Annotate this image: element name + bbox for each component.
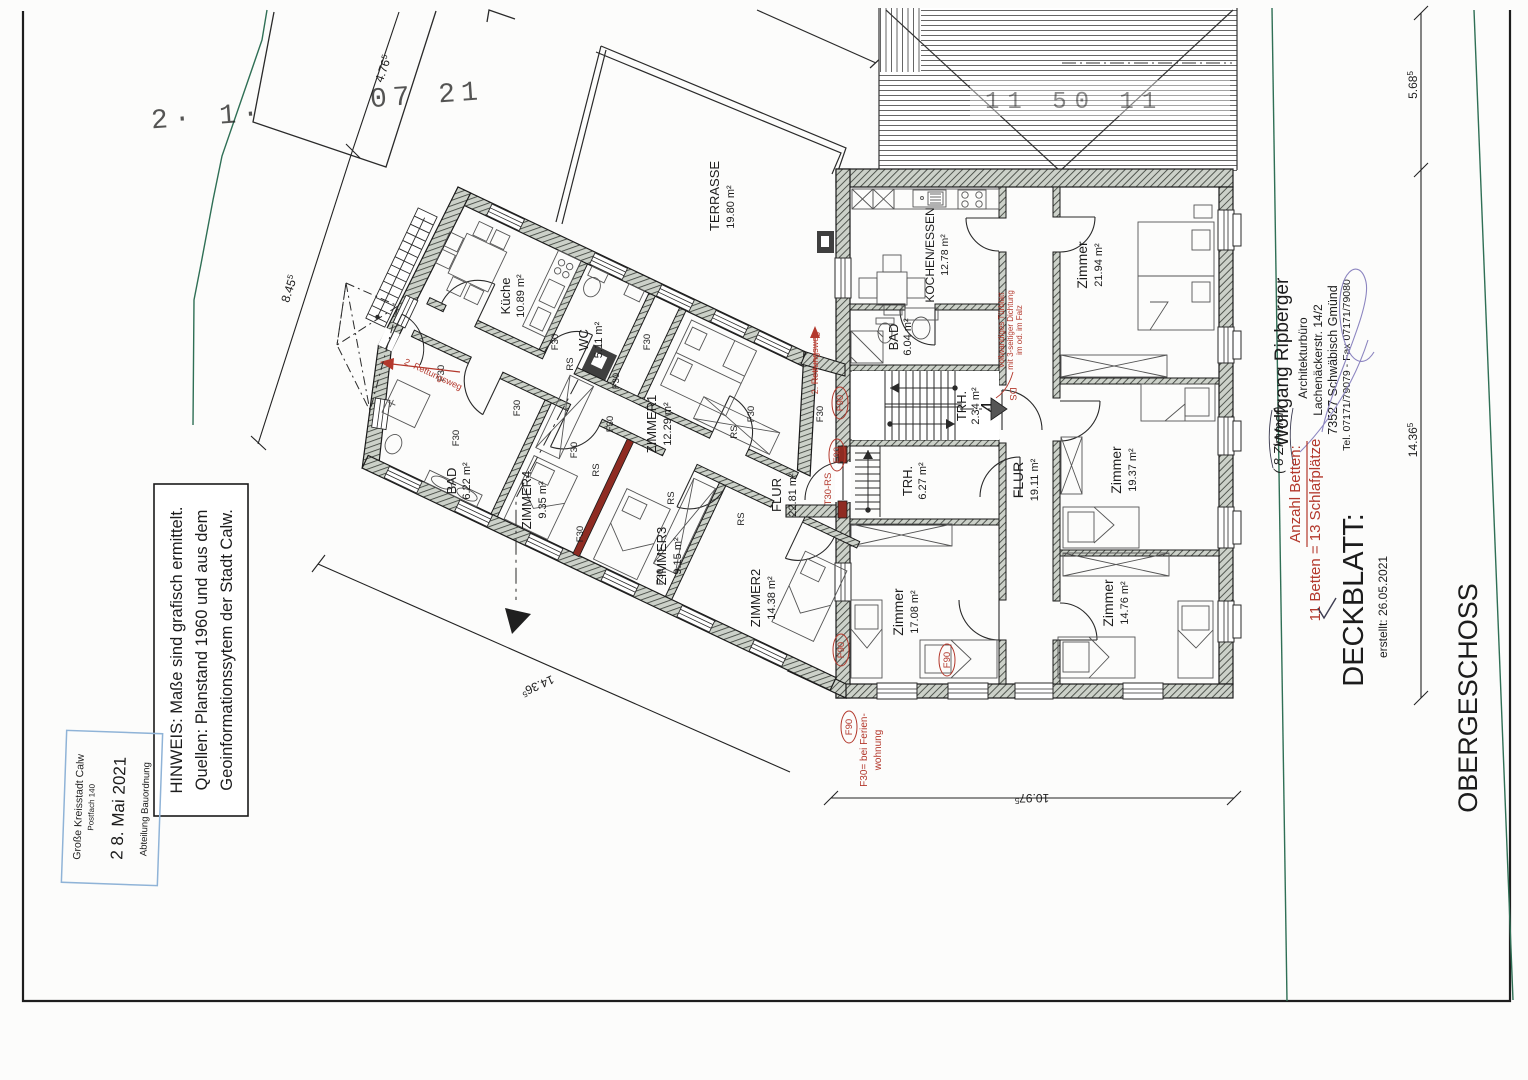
svg-text:10.89 m²: 10.89 m² bbox=[515, 274, 527, 318]
svg-text:17.08 m²: 17.08 m² bbox=[909, 590, 921, 634]
svg-text:2. Rettungsweg: 2. Rettungsweg bbox=[810, 332, 820, 395]
svg-text:wohnung: wohnung bbox=[873, 730, 884, 772]
svg-text:F30: F30 bbox=[569, 442, 580, 458]
svg-text:12.29 m²: 12.29 m² bbox=[662, 402, 674, 446]
svg-text:RS: RS bbox=[591, 463, 602, 476]
svg-text:F30: F30 bbox=[611, 373, 622, 389]
svg-text:F30= bei Ferien-: F30= bei Ferien- bbox=[859, 713, 870, 787]
svg-text:F90: F90 bbox=[942, 652, 953, 668]
svg-text:vollwandiges Türblatt: vollwandiges Türblatt bbox=[997, 292, 1006, 368]
svg-text:HINWEIS: Maße sind grafisch er: HINWEIS: Maße sind grafisch ermittelt. bbox=[168, 507, 186, 794]
svg-text:Quellen: Planstand 1960 und au: Quellen: Planstand 1960 und aus dem bbox=[193, 510, 211, 791]
svg-text:F90: F90 bbox=[832, 447, 843, 463]
svg-text:TERRASSE: TERRASSE bbox=[707, 161, 722, 231]
svg-text:F90: F90 bbox=[836, 642, 847, 658]
svg-text:19.11 m²: 19.11 m² bbox=[1029, 458, 1041, 501]
svg-text:F30: F30 bbox=[746, 406, 757, 422]
svg-text:erstellt: 26.05.2021: erstellt: 26.05.2021 bbox=[1376, 556, 1390, 658]
svg-text:6.04 m²: 6.04 m² bbox=[902, 318, 914, 356]
svg-text:ZIMMER4: ZIMMER4 bbox=[519, 471, 534, 530]
svg-text:F30: F30 bbox=[605, 416, 616, 432]
svg-text:ZIMMER1: ZIMMER1 bbox=[644, 395, 659, 454]
svg-text:19.80 m²: 19.80 m² bbox=[725, 185, 737, 229]
svg-text:5.11 m²: 5.11 m² bbox=[593, 321, 605, 358]
svg-text:( 8 Zimmer): ( 8 Zimmer) bbox=[1271, 406, 1286, 473]
svg-text:22.81 m²: 22.81 m² bbox=[787, 473, 799, 517]
svg-text:BAD: BAD bbox=[444, 468, 459, 495]
svg-text:OBERGESCHOSS: OBERGESCHOSS bbox=[1453, 583, 1483, 813]
svg-text:10.975: 10.975 bbox=[1014, 791, 1049, 805]
svg-text:Zimmer: Zimmer bbox=[1074, 241, 1090, 289]
svg-text:11 Betten = 13 Schlafplätze: 11 Betten = 13 Schlafplätze bbox=[1307, 439, 1324, 622]
svg-text:Architekturbüro: Architekturbüro bbox=[1296, 317, 1310, 399]
svg-text:T30-RS: T30-RS bbox=[823, 473, 834, 506]
svg-text:F30: F30 bbox=[451, 430, 462, 446]
svg-text:WC: WC bbox=[576, 329, 591, 351]
svg-text:FLUR: FLUR bbox=[769, 478, 784, 512]
svg-text:14.38 m²: 14.38 m² bbox=[766, 576, 778, 620]
svg-text:DS: DS bbox=[1007, 387, 1018, 400]
svg-text:F30: F30 bbox=[575, 526, 586, 542]
svg-text:6.27 m²: 6.27 m² bbox=[917, 462, 929, 500]
svg-text:19.37 m²: 19.37 m² bbox=[1127, 448, 1139, 492]
svg-text:DECKBLATT:: DECKBLATT: bbox=[1338, 513, 1370, 687]
svg-text:9.35 m²: 9.35 m² bbox=[537, 481, 549, 519]
svg-text:F30: F30 bbox=[655, 569, 666, 585]
svg-text:RS: RS bbox=[565, 357, 576, 370]
svg-text:Zimmer: Zimmer bbox=[1100, 579, 1116, 627]
svg-text:11 50 11: 11 50 11 bbox=[985, 89, 1164, 116]
svg-text:TRH.: TRH. bbox=[900, 466, 915, 496]
svg-text:RS: RS bbox=[729, 425, 740, 438]
svg-text:F90: F90 bbox=[835, 395, 846, 411]
svg-text:im od. im Falz: im od. im Falz bbox=[1015, 305, 1024, 355]
svg-text:14.365: 14.365 bbox=[1406, 422, 1420, 457]
svg-text:Postfach 140: Postfach 140 bbox=[86, 783, 97, 831]
svg-text:RS: RS bbox=[736, 512, 747, 525]
svg-text:F30: F30 bbox=[815, 406, 826, 422]
svg-text:F30: F30 bbox=[512, 400, 523, 416]
svg-text:FLUR: FLUR bbox=[1010, 462, 1026, 499]
svg-text:2 8. Mai 2021: 2 8. Mai 2021 bbox=[107, 756, 130, 860]
svg-text:RS: RS bbox=[666, 491, 677, 504]
svg-text:21.94 m²: 21.94 m² bbox=[1093, 243, 1105, 287]
svg-text:mit 3-seitiger Dichtung: mit 3-seitiger Dichtung bbox=[1006, 290, 1015, 370]
svg-text:Tel. 07171/79079 - Fax 07171/7: Tel. 07171/79079 - Fax 07171/79080 bbox=[1341, 279, 1353, 451]
svg-text:Zimmer: Zimmer bbox=[890, 588, 906, 636]
svg-text:F30: F30 bbox=[642, 334, 653, 350]
svg-text:F90: F90 bbox=[844, 719, 855, 735]
svg-text:Lachenäckerstr. 14/2: Lachenäckerstr. 14/2 bbox=[1311, 304, 1325, 416]
svg-text:12.78 m²: 12.78 m² bbox=[939, 234, 951, 276]
svg-text:Zimmer: Zimmer bbox=[1108, 446, 1124, 494]
svg-text:ZIMMER2: ZIMMER2 bbox=[748, 569, 763, 628]
svg-text:KOCHEN/ESSEN: KOCHEN/ESSEN bbox=[923, 207, 937, 302]
svg-text:Anzahl Betten:: Anzahl Betten: bbox=[1287, 445, 1304, 543]
svg-text:9.15 m²: 9.15 m² bbox=[672, 537, 684, 575]
svg-text:Küche: Küche bbox=[498, 278, 513, 315]
svg-text:Geoinformationssytem der Stadt: Geoinformationssytem der Stadt Calw. bbox=[218, 509, 236, 791]
svg-text:F30: F30 bbox=[550, 334, 561, 350]
svg-text:6.22 m²: 6.22 m² bbox=[461, 462, 473, 500]
svg-text:TRH.: TRH. bbox=[954, 391, 969, 421]
svg-text:14.76 m²: 14.76 m² bbox=[1119, 581, 1131, 625]
svg-text:BAD: BAD bbox=[886, 324, 901, 351]
